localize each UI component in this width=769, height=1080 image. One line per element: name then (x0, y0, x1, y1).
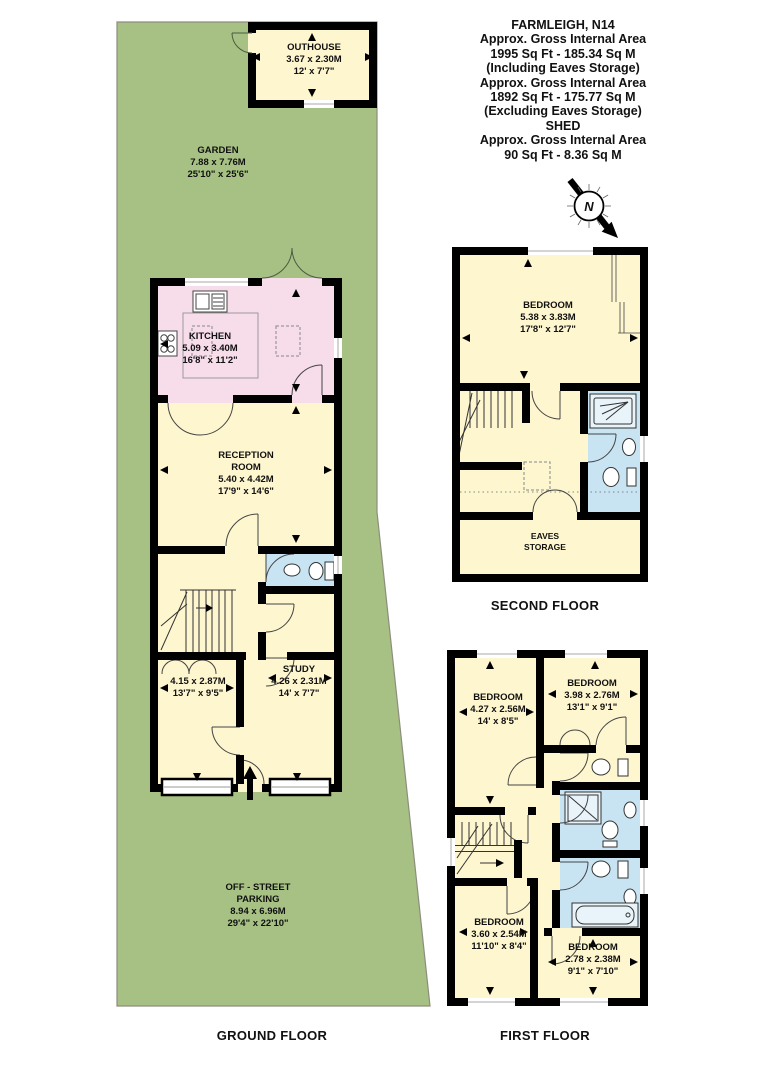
second-floor-label: SECOND FLOOR (491, 598, 599, 613)
room-imperial: 13'7" x 9'5" (170, 688, 225, 700)
area-line: Approx. Gross Internal Area (480, 133, 646, 147)
room-metric: 4.26 x 2.31M (271, 676, 326, 688)
room-metric: 4.15 x 2.87M (170, 676, 225, 688)
ground-floor-plan (150, 248, 342, 800)
room-metric: 4.27 x 2.56M (470, 704, 525, 716)
cistern (618, 759, 628, 776)
kitchen-floor (150, 278, 342, 403)
property-title: FARMLEIGH, N14 (480, 18, 646, 32)
toilet-base (603, 841, 617, 847)
shower-icon (590, 394, 636, 428)
room-metric: 2.78 x 2.38M (565, 954, 620, 966)
room-metric: 5.38 x 3.83M (520, 312, 576, 324)
room-name: PARKING (226, 894, 291, 906)
area-line: Approx. Gross Internal Area (480, 76, 646, 90)
room-imperial: 11'10" x 8'4" (471, 941, 526, 953)
room-imperial: 25'10" x 25'6" (187, 169, 248, 181)
room-name: BEDROOM (470, 692, 525, 704)
area-line: 90 Sq Ft - 8.36 Sq M (480, 148, 646, 162)
room-imperial: 9'1" x 7'10" (565, 966, 620, 978)
room-metric: 7.88 x 7.76M (187, 157, 248, 169)
toilet-icon (309, 563, 323, 580)
area-line: 1995 Sq Ft - 185.34 Sq M (480, 47, 646, 61)
room-imperial: 17'8" x 12'7" (520, 324, 576, 336)
basin-icon (623, 439, 636, 456)
room-imperial: 12' x 7'7" (286, 66, 341, 78)
parking-label: OFF - STREET PARKING 8.94 x 6.96M 29'4" … (226, 882, 291, 930)
room-name: BEDROOM (520, 300, 576, 312)
toilet-icon (592, 861, 610, 877)
cistern (627, 468, 636, 486)
room-metric: 5.09 x 3.40M (182, 343, 237, 355)
area-line: Approx. Gross Internal Area (480, 32, 646, 46)
area-line: (Excluding Eaves Storage) (480, 104, 646, 118)
room-metric: 3.67 x 2.30M (286, 54, 341, 66)
room-imperial: 14' x 7'7" (271, 688, 326, 700)
outhouse-label: OUTHOUSE 3.67 x 2.30M 12' x 7'7" (286, 42, 341, 78)
room-name: OFF - STREET (226, 882, 291, 894)
room-name: BEDROOM (471, 917, 526, 929)
eaves-storage-label: EAVES STORAGE (524, 531, 566, 552)
toilet-icon (602, 821, 618, 839)
bath-icon (572, 903, 638, 927)
second-bedroom-label: BEDROOM 5.38 x 3.83M 17'8" x 12'7" (520, 300, 576, 336)
room-imperial: 16'8" x 11'2" (182, 355, 237, 367)
window (304, 100, 334, 108)
cistern (325, 562, 334, 580)
first-bedroom-front-left-label: BEDROOM 4.27 x 2.56M 14' x 8'5" (470, 692, 525, 728)
room-name: BEDROOM (565, 942, 620, 954)
sink-icon (193, 291, 227, 312)
room-imperial: 13'1" x 9'1" (564, 702, 619, 714)
kitchen-label: KITCHEN 5.09 x 3.40M 16'8" x 11'2" (182, 331, 237, 367)
room-name: EAVES (524, 531, 566, 542)
first-bedroom-back-left-label: BEDROOM 3.60 x 2.54M 11'10" x 8'4" (471, 917, 526, 953)
first-bedroom-front-right-label: BEDROOM 3.98 x 2.76M 13'1" x 9'1" (564, 678, 619, 714)
ground-floor-label: GROUND FLOOR (217, 1028, 327, 1043)
room-name: STORAGE (524, 542, 566, 553)
room-name: ROOM (218, 462, 274, 474)
floorplan-page: FARMLEIGH, N14 Approx. Gross Internal Ar… (0, 0, 769, 1080)
reception-label: RECEPTION ROOM 5.40 x 4.42M 17'9" x 14'6… (218, 450, 274, 498)
first-floor-label: FIRST FLOOR (500, 1028, 590, 1043)
first-bedroom-back-right-label: BEDROOM 2.78 x 2.38M 9'1" x 7'10" (565, 942, 620, 978)
room-name: KITCHEN (182, 331, 237, 343)
basin-icon (284, 564, 300, 576)
room-name: BEDROOM (564, 678, 619, 690)
area-line: (Including Eaves Storage) (480, 61, 646, 75)
basin-icon (624, 802, 636, 818)
room-imperial: 14' x 8'5" (470, 716, 525, 728)
room-name: RECEPTION (218, 450, 274, 462)
room-name: STUDY (271, 664, 326, 676)
toilet-icon (603, 468, 619, 487)
area-line: 1892 Sq Ft - 175.77 Sq M (480, 90, 646, 104)
front-room-label: 4.15 x 2.87M 13'7" x 9'5" (170, 676, 225, 700)
cistern (618, 861, 628, 878)
north-label: N (584, 200, 593, 213)
shower-icon (565, 792, 601, 824)
room-imperial: 29'4" x 22'10" (226, 918, 291, 930)
room-metric: 5.40 x 4.42M (218, 474, 274, 486)
toilet-icon (592, 759, 610, 775)
room-name: OUTHOUSE (286, 42, 341, 54)
room-metric: 3.98 x 2.76M (564, 690, 619, 702)
room-metric: 3.60 x 2.54M (471, 929, 526, 941)
room-metric: 8.94 x 6.96M (226, 906, 291, 918)
shed-heading: SHED (480, 119, 646, 133)
title-block: FARMLEIGH, N14 Approx. Gross Internal Ar… (480, 18, 646, 162)
room-name: GARDEN (187, 145, 248, 157)
room-imperial: 17'9" x 14'6" (218, 486, 274, 498)
floorplan-drawing (0, 0, 769, 1080)
study-label: STUDY 4.26 x 2.31M 14' x 7'7" (271, 664, 326, 700)
garden-label: GARDEN 7.88 x 7.76M 25'10" x 25'6" (187, 145, 248, 181)
door-opening (248, 33, 256, 53)
